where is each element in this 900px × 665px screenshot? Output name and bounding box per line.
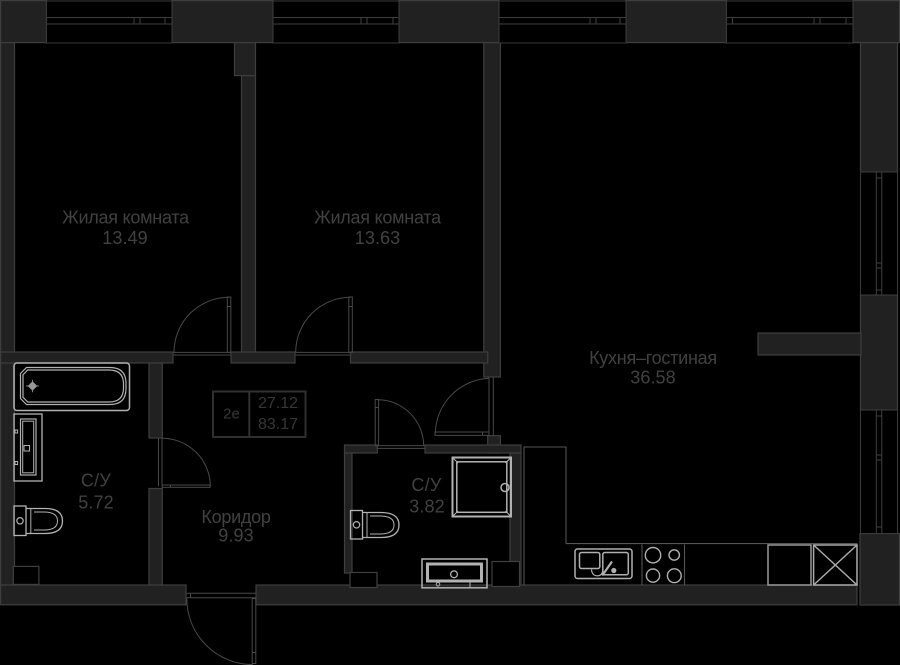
svg-text:3.82: 3.82 [409,497,444,517]
svg-text:5.72: 5.72 [78,493,113,513]
svg-text:27.12: 27.12 [258,395,298,412]
svg-text:83.17: 83.17 [258,416,298,433]
svg-text:Кухня–гостиная: Кухня–гостиная [589,348,717,368]
svg-text:Жилая комната: Жилая комната [314,208,442,228]
svg-text:Жилая комната: Жилая комната [62,208,190,228]
svg-text:С/У: С/У [81,471,112,491]
svg-text:13.49: 13.49 [102,228,148,248]
svg-text:Коридор: Коридор [201,507,271,527]
svg-text:13.63: 13.63 [355,228,401,248]
svg-text:9.93: 9.93 [218,526,253,546]
svg-text:2е: 2е [223,406,240,423]
svg-text:36.58: 36.58 [630,368,676,388]
svg-text:С/У: С/У [411,475,442,495]
